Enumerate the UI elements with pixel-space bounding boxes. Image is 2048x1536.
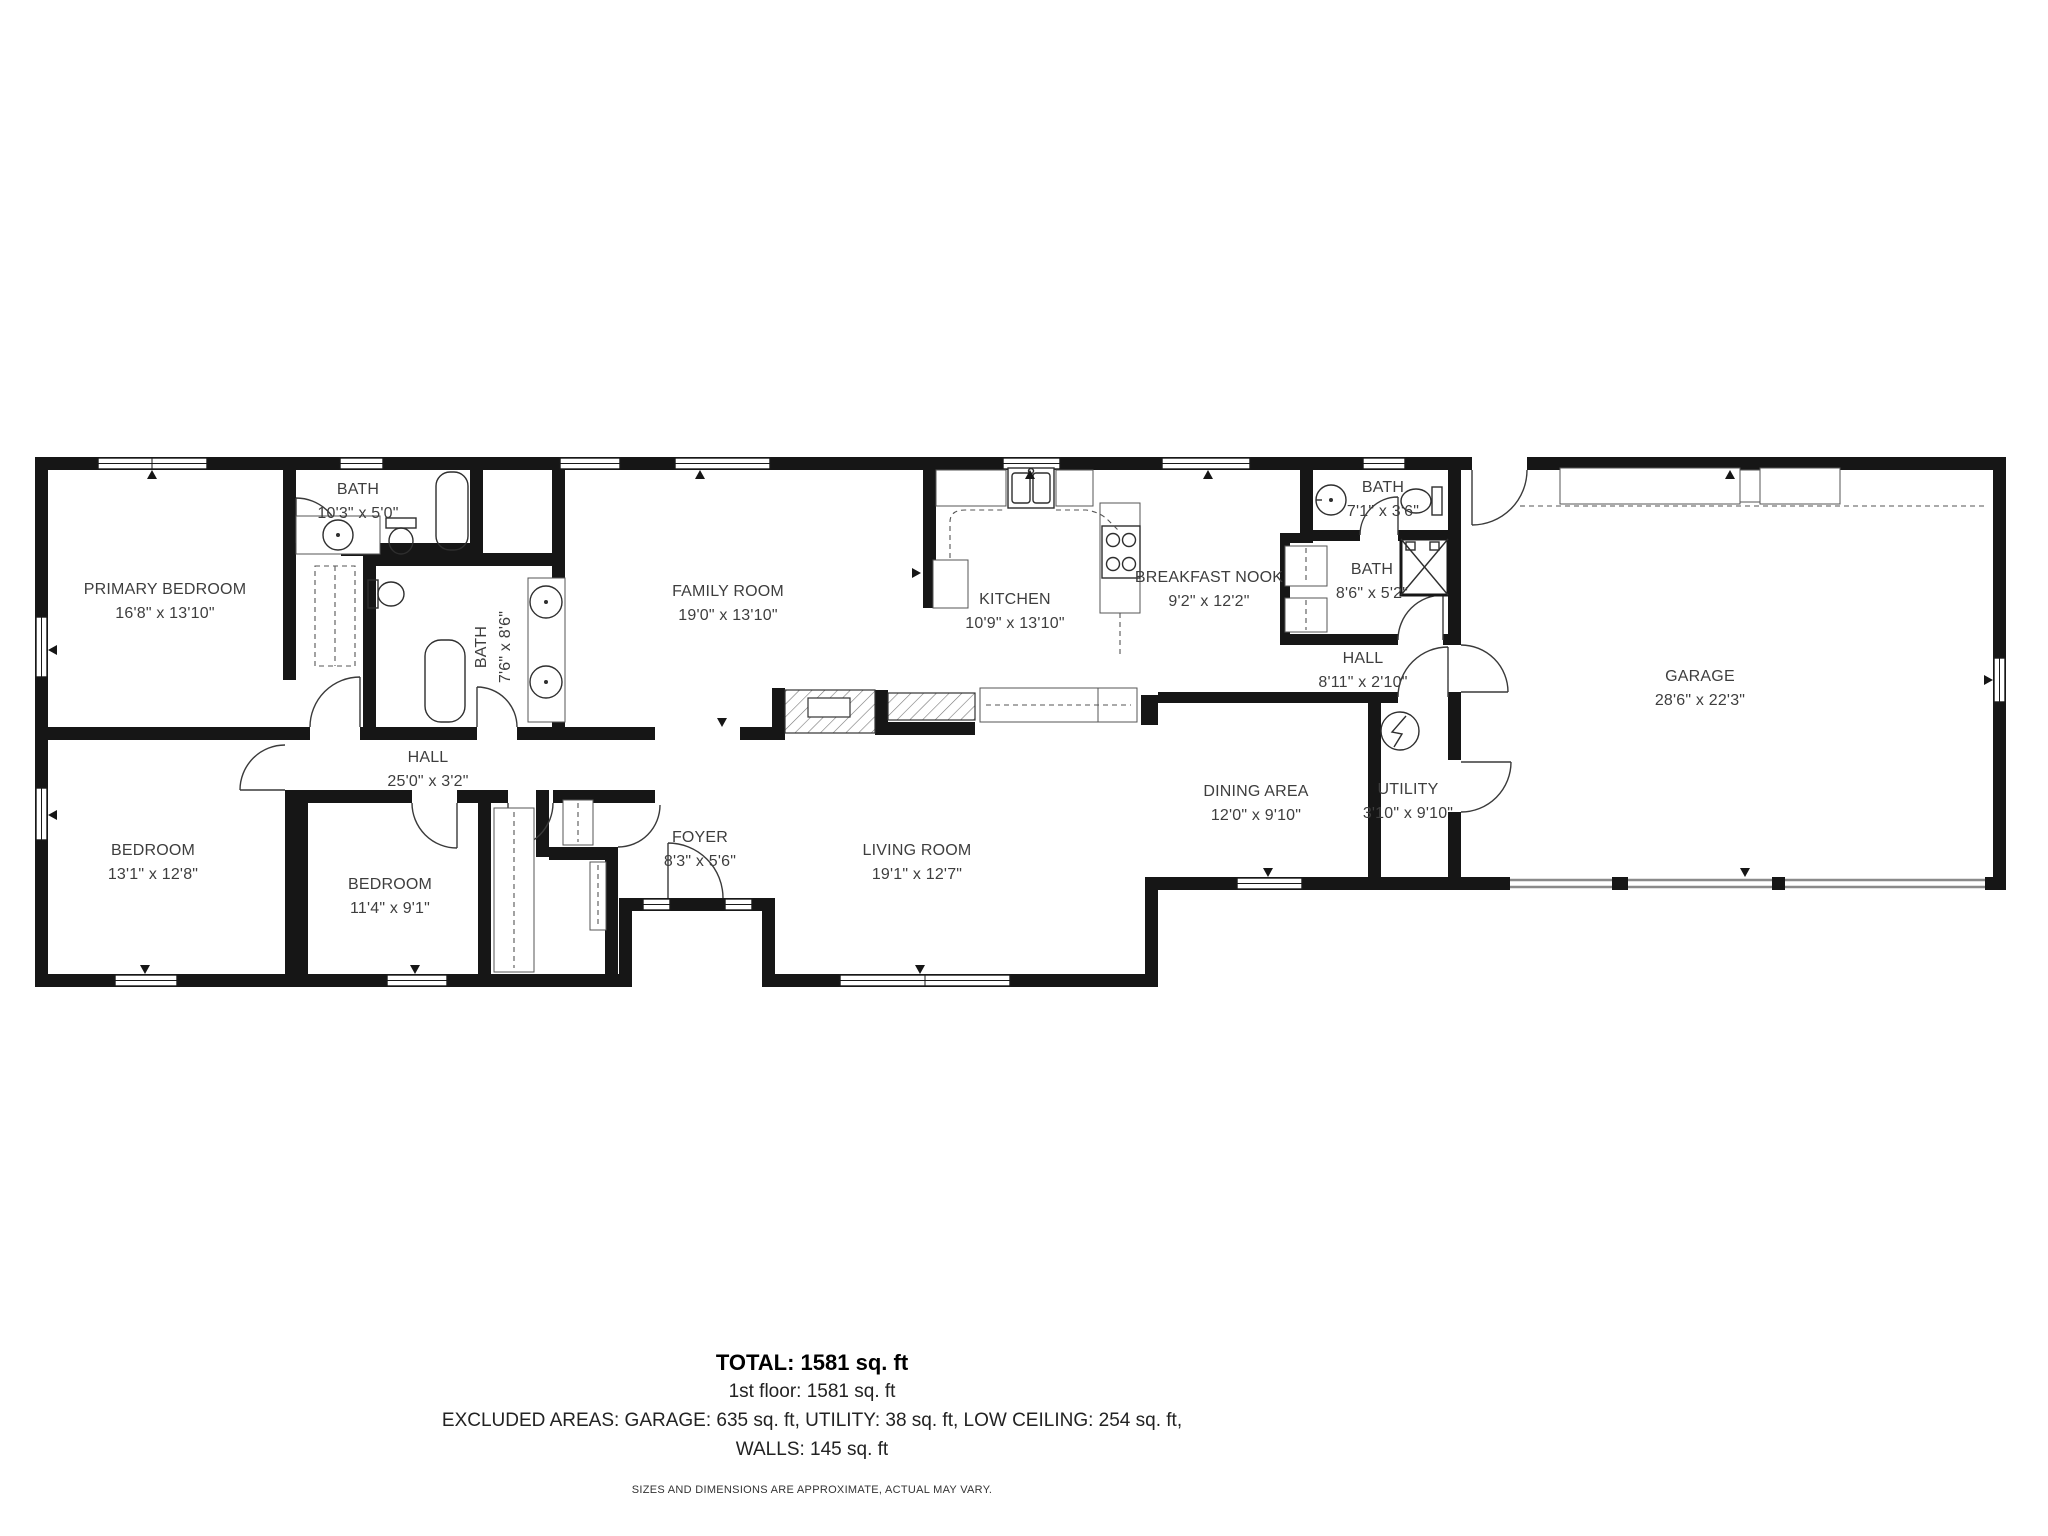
room-label-hall-upper: HALL 8'11" x 2'10" bbox=[1318, 647, 1407, 695]
room-dims: 28'6" x 22'3" bbox=[1655, 692, 1745, 709]
room-name: BATH bbox=[1351, 561, 1393, 578]
floor-plan-page: PRIMARY BEDROOM 16'8" x 13'10" BATH 10'3… bbox=[0, 0, 2048, 1536]
kitchen-island bbox=[980, 688, 1137, 722]
room-name: FAMILY ROOM bbox=[672, 583, 784, 600]
room-name: HALL bbox=[1343, 650, 1384, 667]
room-dims: 10'3" x 5'0" bbox=[317, 505, 398, 522]
room-label-foyer: FOYER 8'3" x 5'6" bbox=[664, 826, 736, 874]
floor-plan-drawing bbox=[0, 0, 2048, 1536]
room-name: PRIMARY BEDROOM bbox=[84, 581, 246, 598]
room-label-dining-area: DINING AREA 12'0" x 9'10" bbox=[1203, 780, 1308, 828]
room-label-bedroom-1: BEDROOM 13'1" x 12'8" bbox=[108, 839, 198, 887]
garage-fixtures bbox=[1510, 468, 1988, 890]
room-name: HALL bbox=[408, 749, 449, 766]
bath2-fixtures bbox=[368, 578, 565, 722]
room-dims: 7'6" x 8'6" bbox=[497, 611, 514, 683]
room-name: LIVING ROOM bbox=[863, 842, 972, 859]
room-dims: 19'0" x 13'10" bbox=[678, 607, 777, 624]
room-dims: 7'1" x 3'6" bbox=[1347, 503, 1419, 520]
room-dims: 19'1" x 12'7" bbox=[872, 866, 962, 883]
room-dims: 8'11" x 2'10" bbox=[1318, 674, 1407, 691]
room-dims: 16'8" x 13'10" bbox=[115, 605, 214, 622]
water-heater bbox=[1381, 712, 1419, 750]
room-label-kitchen: KITCHEN 10'9" x 13'10" bbox=[965, 588, 1064, 636]
room-name: DINING AREA bbox=[1203, 783, 1308, 800]
room-label-breakfast-nook: BREAKFAST NOOK 9'2" x 12'2" bbox=[1135, 566, 1283, 614]
room-dims: 13'1" x 12'8" bbox=[108, 866, 198, 883]
room-name: FOYER bbox=[672, 829, 728, 846]
room-dims: 3'10" x 9'10" bbox=[1363, 805, 1453, 822]
closets bbox=[494, 800, 606, 972]
total-area-text: TOTAL: 1581 sq. ft bbox=[212, 1350, 1412, 1376]
floor-area-text: 1st floor: 1581 sq. ft bbox=[212, 1381, 1412, 1403]
room-label-bedroom-2: BEDROOM 11'4" x 9'1" bbox=[348, 873, 432, 921]
room-label-family-room: FAMILY ROOM 19'0" x 13'10" bbox=[672, 580, 784, 628]
walk-in-closet bbox=[315, 566, 355, 666]
room-dims: 25'0" x 3'2" bbox=[387, 773, 468, 790]
room-dims: 9'2" x 12'2" bbox=[1168, 593, 1249, 610]
room-label-bath-2: BATH 7'6" x 8'6" bbox=[470, 611, 518, 683]
excluded-areas-text: EXCLUDED AREAS: GARAGE: 635 sq. ft, UTIL… bbox=[212, 1410, 1412, 1432]
room-name: BEDROOM bbox=[348, 876, 432, 893]
room-label-hall-main: HALL 25'0" x 3'2" bbox=[387, 746, 468, 794]
room-name: BATH bbox=[337, 481, 379, 498]
disclaimer-text: SIZES AND DIMENSIONS ARE APPROXIMATE, AC… bbox=[212, 1484, 1412, 1496]
room-label-bath-4: BATH 8'6" x 5'2" bbox=[1336, 558, 1408, 606]
walls-area-text: WALLS: 145 sq. ft bbox=[212, 1439, 1412, 1461]
room-dims: 8'3" x 5'6" bbox=[664, 853, 736, 870]
room-label-primary-bedroom: PRIMARY BEDROOM 16'8" x 13'10" bbox=[84, 578, 246, 626]
room-name: BEDROOM bbox=[111, 842, 195, 859]
room-label-living-room: LIVING ROOM 19'1" x 12'7" bbox=[863, 839, 972, 887]
room-name: GARAGE bbox=[1665, 668, 1735, 685]
room-name: UTILITY bbox=[1378, 781, 1439, 798]
room-dims: 10'9" x 13'10" bbox=[965, 615, 1064, 632]
room-label-utility: UTILITY 3'10" x 9'10" bbox=[1363, 778, 1453, 826]
room-dims: 11'4" x 9'1" bbox=[350, 900, 430, 917]
room-name: BATH bbox=[473, 626, 490, 668]
room-label-garage: GARAGE 28'6" x 22'3" bbox=[1655, 665, 1745, 713]
room-name: BATH bbox=[1362, 479, 1404, 496]
room-label-bath-3: BATH 7'1" x 3'6" bbox=[1347, 476, 1419, 524]
room-label-bath-1: BATH 10'3" x 5'0" bbox=[317, 478, 398, 526]
room-dims: 12'0" x 9'10" bbox=[1211, 807, 1301, 824]
room-name: KITCHEN bbox=[979, 591, 1051, 608]
room-name: BREAKFAST NOOK bbox=[1135, 569, 1283, 586]
room-dims: 8'6" x 5'2" bbox=[1336, 585, 1408, 602]
